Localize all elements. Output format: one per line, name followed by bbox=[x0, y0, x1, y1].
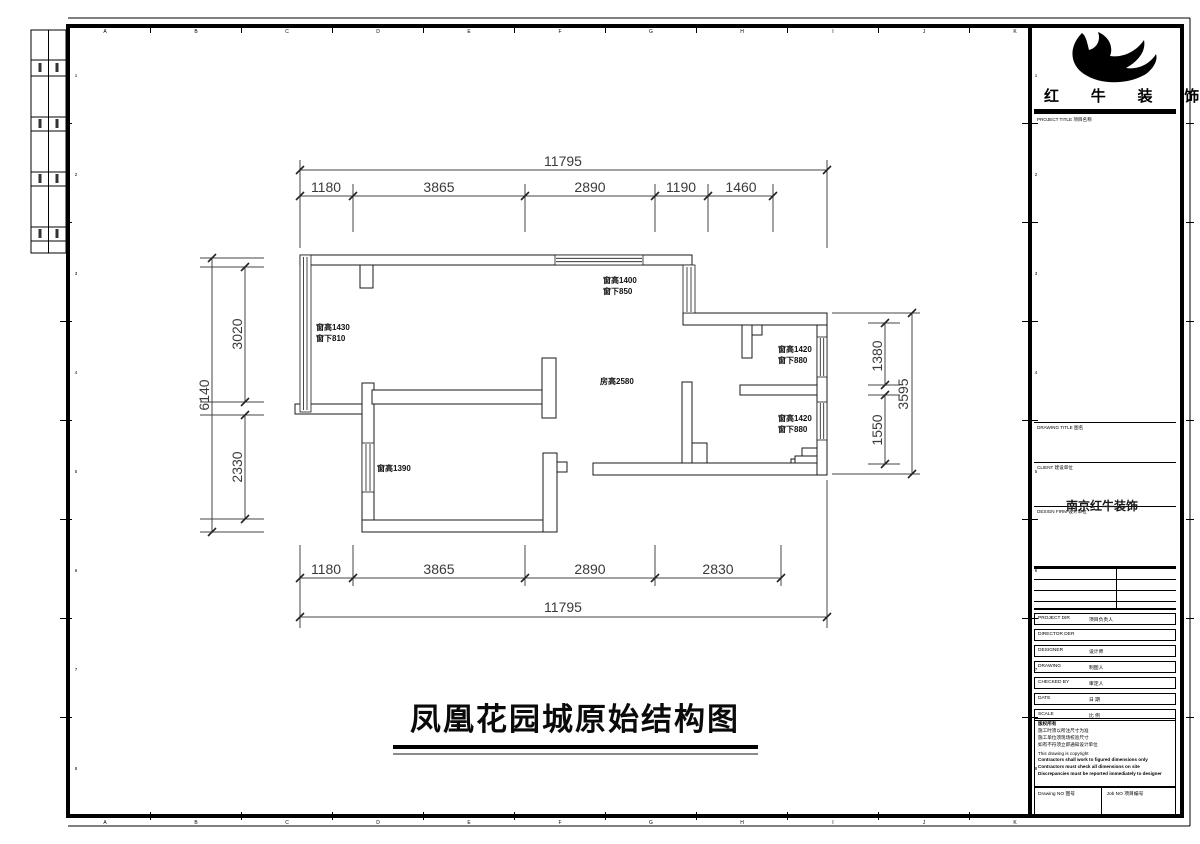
drawing-canvas: A B C D E F G H I J K A B C D E F G H I … bbox=[0, 0, 1200, 844]
grid-number: 3 bbox=[75, 271, 78, 276]
title-underline-thin bbox=[393, 753, 758, 755]
grid-letter: G bbox=[649, 29, 653, 35]
grid-letters-bottom: A B C D E F G H I J K bbox=[103, 820, 1017, 826]
row-date: DATE 日 期 bbox=[1034, 693, 1176, 705]
grid-letter: A bbox=[103, 820, 107, 826]
copyright-line-en: Contractors must check all dimensions on… bbox=[1038, 765, 1172, 772]
dim-bottom-seg: 3865 bbox=[423, 561, 454, 577]
divider-bar bbox=[1034, 109, 1176, 114]
row-label-en: CHECKED BY bbox=[1038, 680, 1069, 685]
project-title-label: PROJECT TITLE 项目名称 bbox=[1037, 117, 1092, 123]
copyright-line: 施工单位须现场校验尺寸 bbox=[1038, 735, 1172, 742]
dim-left-seg: 3020 bbox=[229, 318, 245, 349]
grid-letter: A bbox=[103, 29, 107, 35]
dim-bottom-overall: 11795 bbox=[544, 599, 582, 615]
grid-letter: K bbox=[1013, 29, 1017, 35]
row-label-en: PROJECT DIR bbox=[1038, 616, 1070, 621]
company-name: 红 牛 装 饰 bbox=[1034, 85, 1176, 106]
number-row: Drawing NO 图号 Job NO 项目编号 bbox=[1034, 787, 1176, 815]
grid-letter: D bbox=[376, 29, 380, 35]
room-height-label: 房高2580 bbox=[600, 376, 634, 386]
number-row-divider bbox=[1101, 788, 1102, 814]
row-drawing: DRAWING 制图人 bbox=[1034, 661, 1176, 673]
drawing-sheet: A B C D E F G H I J K A B C D E F G H I … bbox=[0, 0, 1200, 844]
drawing-title: 凤凰花园城原始结构图 bbox=[393, 702, 758, 755]
grid-number: 5 bbox=[75, 469, 78, 474]
grid-letter: C bbox=[285, 820, 289, 826]
dim-top-seg: 1190 bbox=[666, 179, 696, 195]
row-label-zh: 日 期 bbox=[1089, 696, 1100, 703]
section-drawing-title: DRAWING TITLE 图名 bbox=[1034, 423, 1176, 463]
grid-number: 1 bbox=[75, 73, 78, 78]
window-label: 窗高1430 bbox=[316, 322, 350, 332]
dim-bottom-seg: 2830 bbox=[702, 561, 733, 577]
row-label-zh: 审定人 bbox=[1089, 680, 1103, 687]
window-label: 窗高1390 bbox=[377, 463, 411, 473]
section-project-title: PROJECT TITLE 项目名称 bbox=[1034, 115, 1176, 423]
grid-number: 2 bbox=[75, 172, 78, 177]
dim-left-overall: 6140 bbox=[196, 379, 212, 410]
dim-top-seg: 3865 bbox=[423, 179, 454, 195]
window-label: 窗下880 bbox=[778, 355, 808, 365]
window-label: 窗下880 bbox=[778, 424, 808, 434]
window-label: 窗下850 bbox=[603, 286, 633, 296]
grid-letters-top: A B C D E F G H I J K bbox=[103, 29, 1017, 35]
signoff-row bbox=[1034, 569, 1176, 580]
grid-letter: H bbox=[740, 29, 744, 35]
grid-letter: E bbox=[467, 29, 471, 35]
grid-letter: E bbox=[467, 820, 471, 826]
copyright-line: 版权所有 bbox=[1038, 721, 1172, 728]
dim-right-seg: 1380 bbox=[869, 340, 885, 371]
grid-number: 7 bbox=[75, 667, 78, 672]
signoff-row bbox=[1034, 591, 1176, 602]
row-label-en: DATE bbox=[1038, 696, 1050, 701]
grid-number: 6 bbox=[75, 568, 78, 573]
floor-plan-walls bbox=[295, 255, 827, 532]
grid-letter: J bbox=[923, 29, 926, 35]
window-label: 窗高1420 bbox=[778, 413, 812, 423]
grid-letter: D bbox=[376, 820, 380, 826]
signoff-row bbox=[1034, 580, 1176, 591]
copyright-block: 版权所有 施工时须以所注尺寸为准 施工单位须现场校验尺寸 如有不符须立即通知设计… bbox=[1034, 718, 1176, 787]
row-label-zh: 项目负责人 bbox=[1089, 616, 1113, 623]
grid-number: 8 bbox=[75, 766, 78, 771]
row-label-en: SCALE bbox=[1038, 712, 1054, 717]
drawing-title-label: DRAWING TITLE 图名 bbox=[1037, 425, 1083, 431]
section-design-firm: DESIGN FIRM 设计单位 南京红牛装饰 bbox=[1034, 507, 1176, 567]
copyright-line: 如有不符须立即通知设计单位 bbox=[1038, 742, 1172, 749]
copyright-line-en: Discrepancies must be reported immediate… bbox=[1038, 771, 1172, 778]
window-label: 窗下810 bbox=[316, 333, 346, 343]
row-designer: DESIGNER 设计师 bbox=[1034, 645, 1176, 657]
bull-swoosh-logo bbox=[1048, 27, 1168, 85]
row-project-dir: PROJECT DIR 项目负责人 bbox=[1034, 613, 1176, 625]
copyright-line: 施工时须以所注尺寸为准 bbox=[1038, 728, 1172, 735]
row-label-zh: 制图人 bbox=[1089, 664, 1103, 671]
drawing-title-text: 凤凰花园城原始结构图 bbox=[410, 702, 740, 737]
grid-letter: J bbox=[923, 820, 926, 826]
grid-letter: G bbox=[649, 820, 653, 826]
grid-numbers-left: 1 2 3 4 5 6 7 8 bbox=[75, 73, 78, 771]
design-firm-stamp: 南京红牛装饰 bbox=[1066, 497, 1138, 514]
revision-strip bbox=[31, 30, 66, 253]
grid-letter: B bbox=[194, 820, 198, 826]
row-director: DIRECTOR DER bbox=[1034, 629, 1176, 641]
plan-labels: 窗高1430 窗下810 窗高1400 窗下850 房高2580 窗高1420 … bbox=[316, 275, 812, 473]
floor-plan-windows bbox=[300, 255, 827, 492]
grid-letter: F bbox=[558, 820, 561, 826]
grid-letter: I bbox=[832, 29, 833, 35]
dim-right-seg: 1550 bbox=[869, 414, 885, 445]
grid-letter: I bbox=[832, 820, 833, 826]
row-checked-by: CHECKED BY 审定人 bbox=[1034, 677, 1176, 689]
signoff-divider bbox=[1116, 569, 1117, 608]
row-label-en: DRAWING bbox=[1038, 664, 1061, 669]
signoff-table bbox=[1034, 567, 1176, 610]
dim-bottom-seg: 1180 bbox=[311, 561, 341, 577]
dim-right-overall: 3595 bbox=[895, 378, 911, 409]
grid-letter: K bbox=[1013, 820, 1017, 826]
dim-top-overall: 11795 bbox=[544, 153, 582, 169]
client-label: CLIENT 建设单位 bbox=[1037, 465, 1073, 471]
grid-letter: H bbox=[740, 820, 744, 826]
grid-number: 4 bbox=[75, 370, 78, 375]
row-label-en: DESIGNER bbox=[1038, 648, 1063, 653]
title-underline bbox=[393, 745, 758, 749]
grid-letter: C bbox=[285, 29, 289, 35]
window-label: 窗高1420 bbox=[778, 344, 812, 354]
grid-ticks bbox=[60, 25, 1194, 820]
job-no-label: Job NO 项目编号 bbox=[1104, 790, 1144, 797]
grid-letter: F bbox=[558, 29, 561, 35]
drawing-no-label: Drawing NO 图号 bbox=[1038, 790, 1075, 797]
grid-letter: B bbox=[194, 29, 198, 35]
dim-left-seg: 2330 bbox=[229, 451, 245, 482]
personnel-rows: PROJECT DIR 项目负责人 DIRECTOR DER DESIGNER … bbox=[1034, 613, 1176, 725]
dim-bottom-seg: 2890 bbox=[574, 561, 605, 577]
dim-top-seg: 2890 bbox=[574, 179, 605, 195]
row-label-zh: 设计师 bbox=[1089, 648, 1103, 655]
dim-top-seg: 1180 bbox=[311, 179, 341, 195]
window-label: 窗高1400 bbox=[603, 275, 637, 285]
dim-top-seg: 1460 bbox=[725, 179, 756, 195]
row-label-en: DIRECTOR DER bbox=[1038, 632, 1074, 637]
title-block: 红 牛 装 饰 PROJECT TITLE 项目名称 DRAWING TITLE… bbox=[1034, 25, 1176, 818]
